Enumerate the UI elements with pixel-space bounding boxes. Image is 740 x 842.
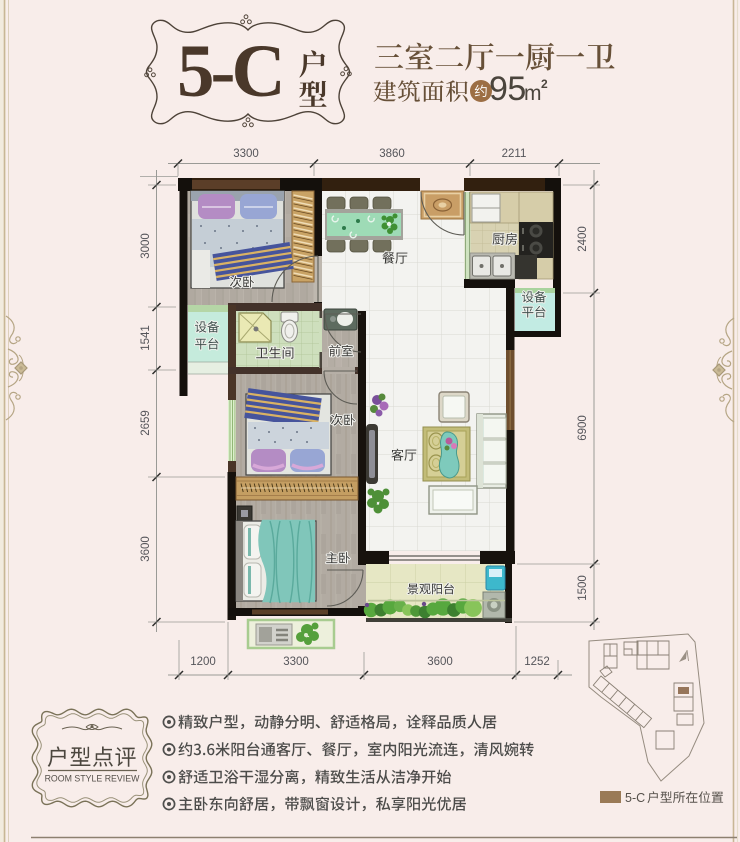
svg-text:1200: 1200 [190, 656, 216, 668]
svg-text:2400: 2400 [577, 226, 589, 252]
svg-text:6900: 6900 [577, 415, 589, 441]
svg-text:2659: 2659 [140, 410, 152, 436]
svg-text:5-C: 5-C [177, 30, 282, 113]
svg-text:ROOM STYLE REVIEW: ROOM STYLE REVIEW [45, 774, 141, 784]
svg-text:3860: 3860 [379, 148, 405, 160]
svg-text:3300: 3300 [233, 148, 259, 160]
svg-text:2: 2 [541, 77, 548, 91]
svg-text:m: m [524, 82, 542, 105]
svg-text:1500: 1500 [577, 575, 589, 601]
svg-text:1541: 1541 [140, 325, 152, 351]
svg-text:2211: 2211 [502, 148, 527, 160]
svg-text:3600: 3600 [427, 656, 453, 668]
svg-text:1252: 1252 [524, 656, 550, 668]
svg-text:3600: 3600 [140, 536, 152, 562]
svg-text:3000: 3000 [140, 233, 152, 259]
svg-text:95: 95 [489, 70, 526, 108]
svg-text:3300: 3300 [283, 656, 309, 668]
svg-text:5-C: 5-C [625, 791, 645, 805]
